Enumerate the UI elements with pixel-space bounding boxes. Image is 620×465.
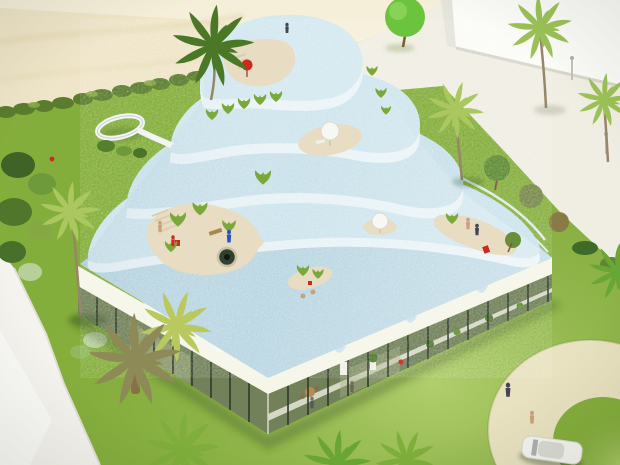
- rendering-canvas: [0, 0, 620, 465]
- scene-rendering: [0, 0, 620, 465]
- photo-vignette: [0, 0, 620, 465]
